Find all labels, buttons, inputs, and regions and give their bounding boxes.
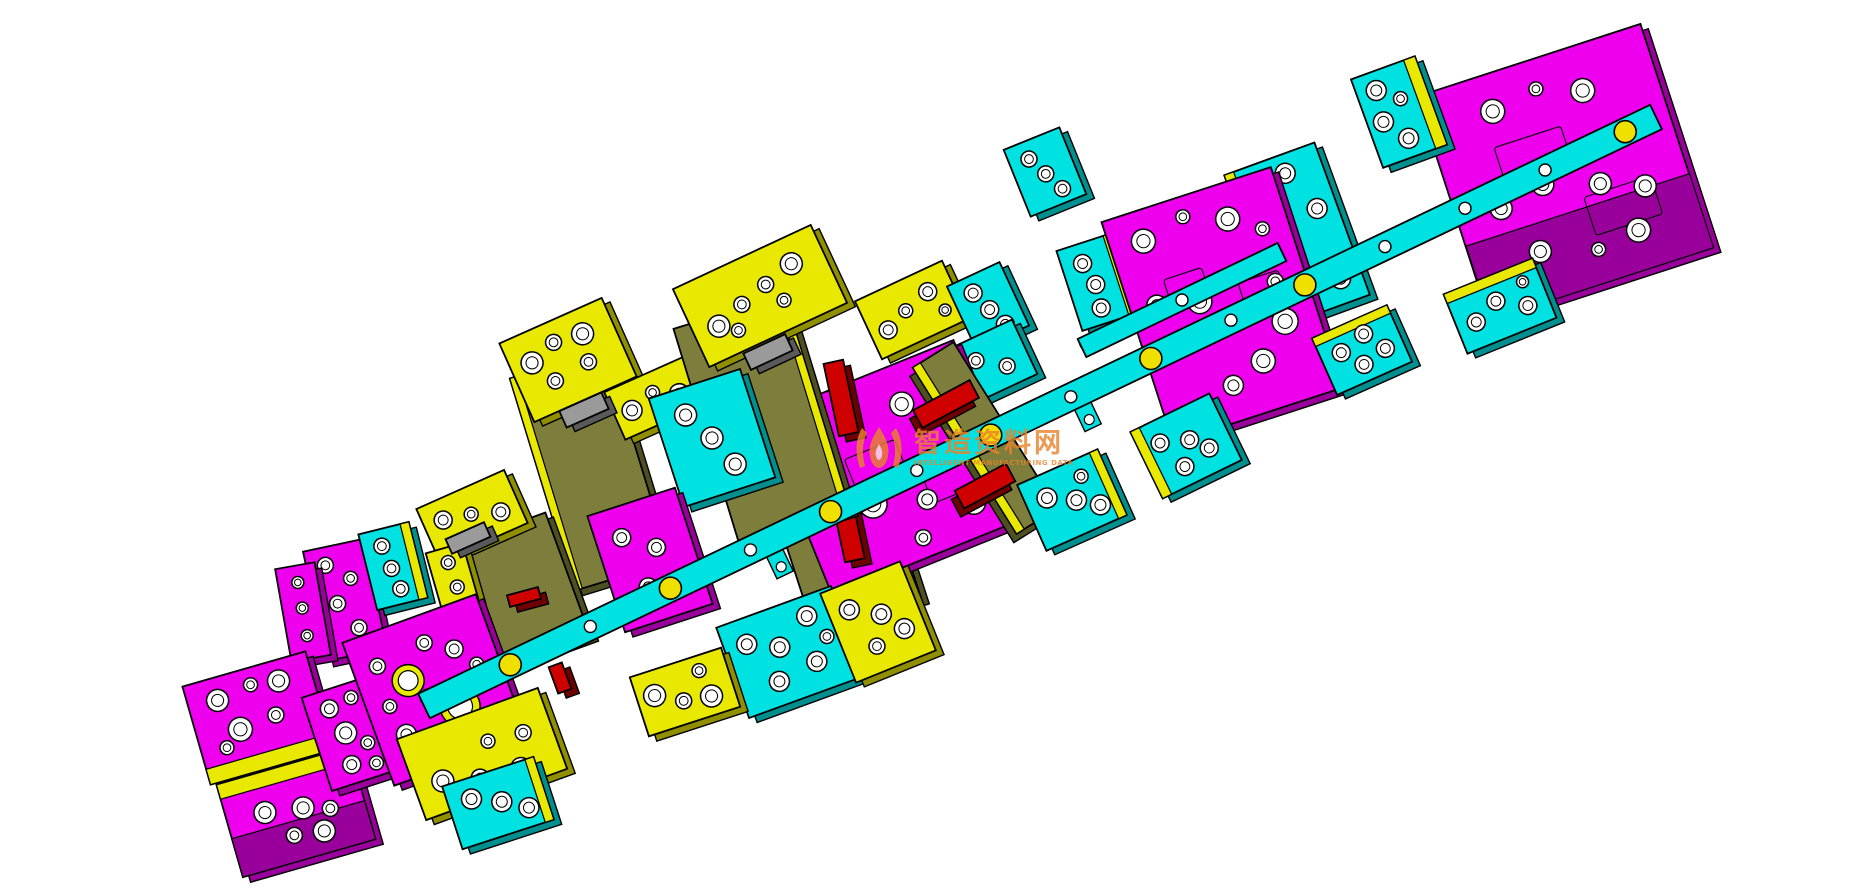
rail-bolt [1294, 274, 1316, 296]
yellow-plate-c-low[interactable] [630, 646, 748, 743]
red-pin-bl3[interactable] [549, 660, 580, 700]
rail-bolt [659, 577, 681, 599]
cad-viewport: 智造资料网 INTELLIGENT MANUFACTURING DATA [0, 0, 1860, 893]
rail-bolt [1140, 347, 1162, 369]
rail-bolt [499, 654, 521, 676]
cad-assembly-scene [0, 0, 1860, 893]
rail-bolt [980, 424, 1002, 446]
cyan-plate-rc-low2[interactable] [1017, 447, 1135, 557]
rail-bolt [820, 501, 842, 523]
rail-bolt [1614, 121, 1636, 143]
cyan-plate-rc-top[interactable] [1004, 125, 1095, 223]
